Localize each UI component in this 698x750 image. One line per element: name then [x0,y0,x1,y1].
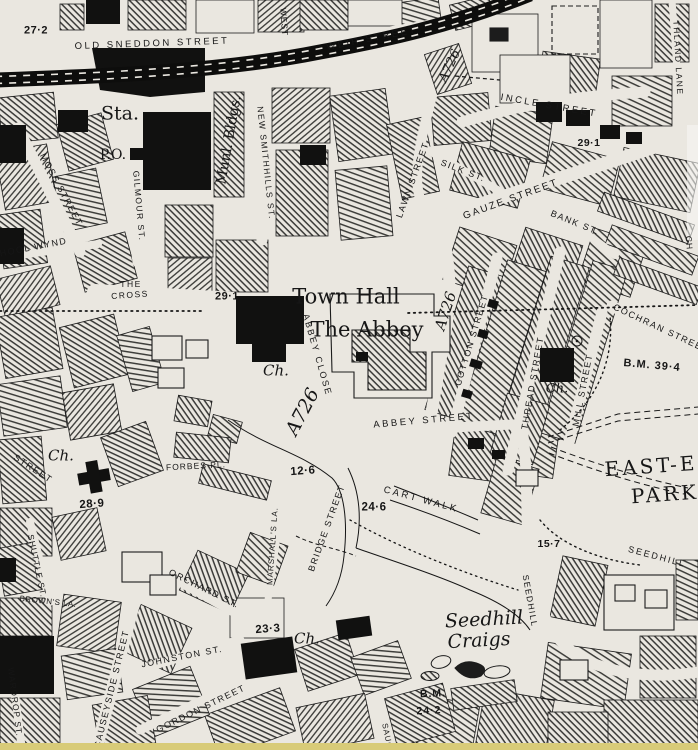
scan-edge-strip [0,743,698,750]
map-scan: 27·2OLD SNEDDON STREETWEIR STREETWESTINC… [0,0,698,750]
scan-glare [687,125,698,240]
thread-street-church [540,348,574,382]
station-building [143,112,211,190]
johnston-street-church [241,637,298,680]
map-engraving [0,0,698,750]
